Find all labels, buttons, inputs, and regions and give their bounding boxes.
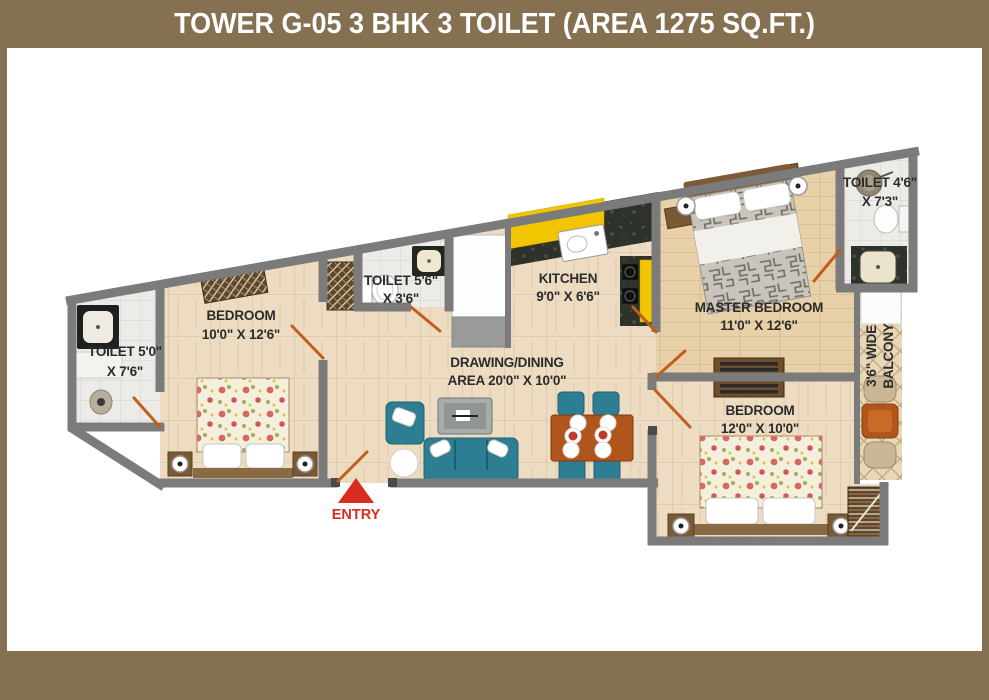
dining-chair [593,392,619,415]
label-drawing-dining: DRAWING/DINING [450,355,563,370]
lamp-dot [839,524,844,529]
food-dot [569,432,578,441]
label-master-bedroom: MASTER BEDROOM [695,300,823,315]
label-toilet-left: TOILET 5'0" [88,344,162,359]
label-bedroom-right: BEDROOM [725,403,794,418]
bed-pillow [706,498,758,524]
entry-label: ENTRY [332,507,381,523]
bed-mattress [197,378,289,452]
fridge-icon [452,235,506,317]
dresser-icon [714,358,784,375]
label-master-bedroom-dims: 11'0" X 12'6" [720,318,797,333]
food-dot [599,431,608,440]
label-balcony-width: 3'6" WIDE [864,325,879,387]
stove-burner [622,264,638,280]
basin-drain [427,259,431,263]
plate-icon [595,442,611,458]
bed-base [193,468,293,478]
bed-pillow [763,498,815,524]
label-toilet-right-dims: X 7'3" [862,194,898,209]
sink-drain [876,265,880,269]
plate-icon [563,442,579,458]
label-kitchen-dims: 9'0" X 6'6" [536,289,600,304]
wall-cap [648,426,657,435]
label-toilet-mid: TOILET 5'6" [364,273,438,288]
lamp-dot [178,462,183,467]
title-bar: TOWER G-05 3 BHK 3 TOILET (AREA 1275 SQ.… [0,0,989,48]
wall-cap [388,478,397,487]
fridge-base [452,317,506,347]
wardrobe-icon [327,262,357,310]
fridge-unit [452,235,506,347]
label-bedroom-left: BEDROOM [206,308,275,323]
label-bedroom-left-dims: 10'0" X 12'6" [202,327,280,342]
floor-plan: TOILET 5'0" X 7'6" BEDROOM 10'0" X 12'6"… [0,0,989,700]
label-bedroom-right-dims: 12'0" X 10'0" [721,421,799,436]
dresser-bar [720,390,778,394]
bed-pillow [246,444,284,468]
bed-pillow [203,444,241,468]
wc-icon [874,205,898,233]
dining-chair [558,392,584,415]
side-table-icon [390,449,418,477]
label-toilet-right: TOILET 4'6" [843,175,917,190]
dresser-bar [720,384,778,388]
lamp-dot [796,184,801,189]
stove-burner [622,288,638,304]
page-title: TOWER G-05 3 BHK 3 TOILET (AREA 1275 SQ.… [174,8,815,41]
dresser-bar [720,368,778,372]
wall-diagonal-outer [70,427,164,487]
lamp-dot [303,462,308,467]
label-toilet-mid-dims: X 3'6" [383,291,419,306]
lamp-dot [684,204,689,209]
balcony-table-top [868,410,892,432]
lamp-dot [679,524,684,529]
bed-base [694,524,828,535]
bed-mattress [700,436,822,508]
wicker-chair-icon [864,442,896,468]
label-toilet-left-dims: X 7'6" [107,364,143,379]
label-kitchen: KITCHEN [539,271,598,286]
label-balcony: BALCONY [881,323,896,389]
bathtub-drain [96,325,100,329]
balcony-cabinet [861,292,901,324]
label-drawing-dining-dims: AREA 20'0" X 10'0" [448,373,567,388]
dining-table-icon [551,415,633,461]
dresser-icon [714,380,784,397]
dresser-bar [720,362,778,366]
wc-flush [97,398,105,406]
wardrobe-bottom-right [848,487,884,539]
